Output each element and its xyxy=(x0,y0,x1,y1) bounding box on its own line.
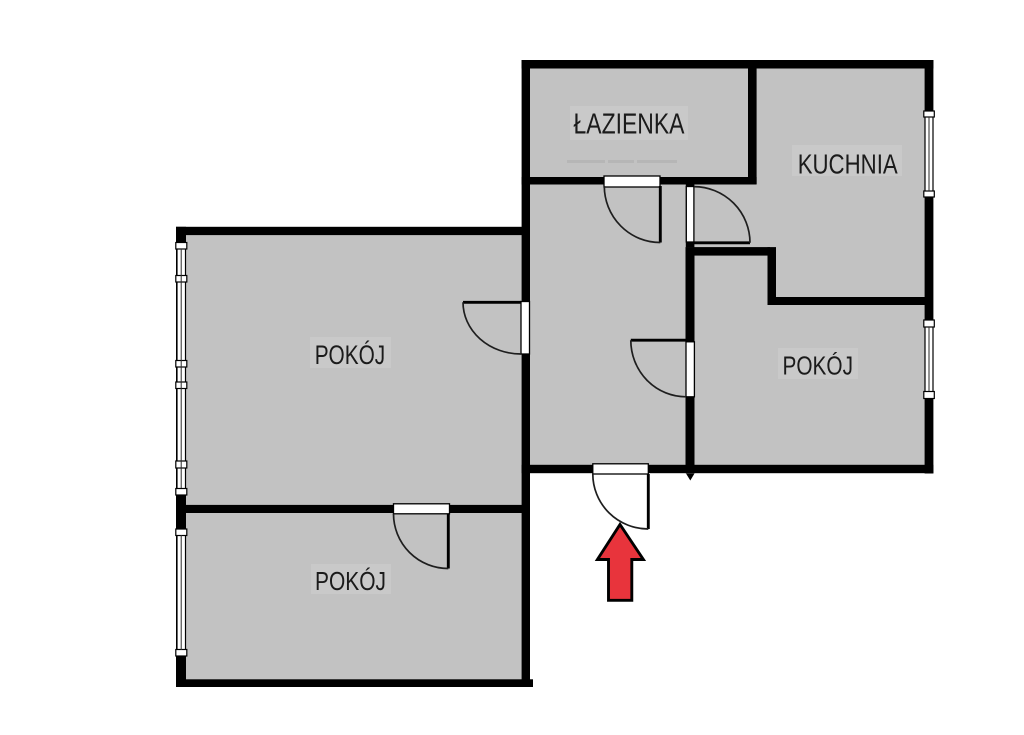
svg-text:POKÓJ: POKÓJ xyxy=(783,351,854,381)
svg-text:POKÓJ: POKÓJ xyxy=(315,339,386,370)
svg-text:POKÓJ: POKÓJ xyxy=(315,567,386,596)
svg-text:ŁAZIENKA: ŁAZIENKA xyxy=(574,109,685,141)
svg-text:KUCHNIA: KUCHNIA xyxy=(798,148,899,179)
